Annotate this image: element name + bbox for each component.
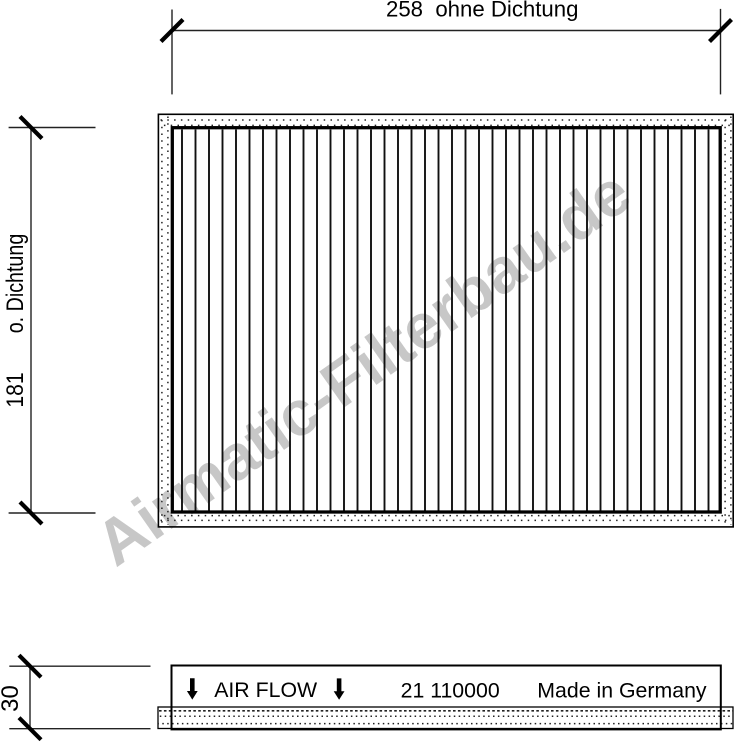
- svg-text:o. Dichtung: o. Dichtung: [1, 234, 28, 334]
- svg-text:30: 30: [0, 685, 24, 712]
- svg-text:AIR FLOW: AIR FLOW: [214, 678, 318, 702]
- svg-text:258 ohne Dichtung: 258 ohne Dichtung: [386, 0, 578, 21]
- svg-text:181: 181: [2, 372, 29, 407]
- svg-text:21 110000: 21 110000: [401, 678, 500, 702]
- svg-text:Made in Germany: Made in Germany: [537, 678, 707, 702]
